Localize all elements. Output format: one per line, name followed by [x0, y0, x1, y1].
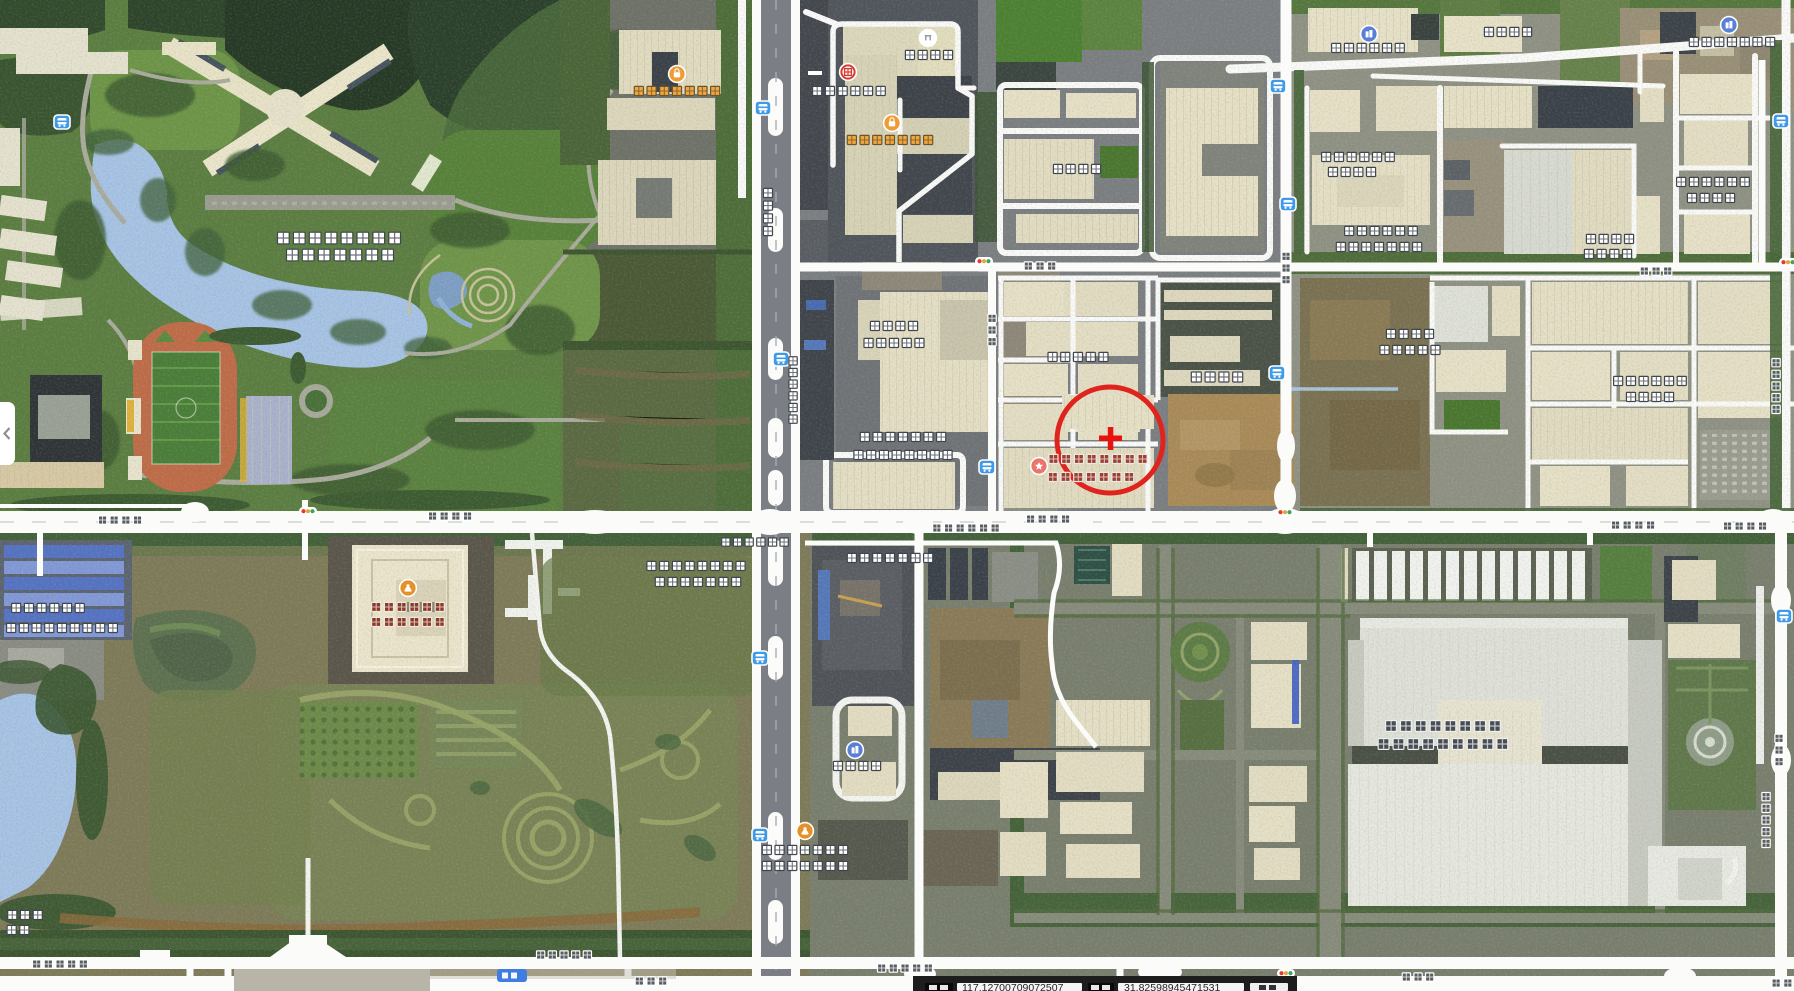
svg-text:31.82598945471531: 31.82598945471531 [1124, 982, 1221, 991]
svg-text:117.12700709072507: 117.12700709072507 [962, 982, 1064, 991]
